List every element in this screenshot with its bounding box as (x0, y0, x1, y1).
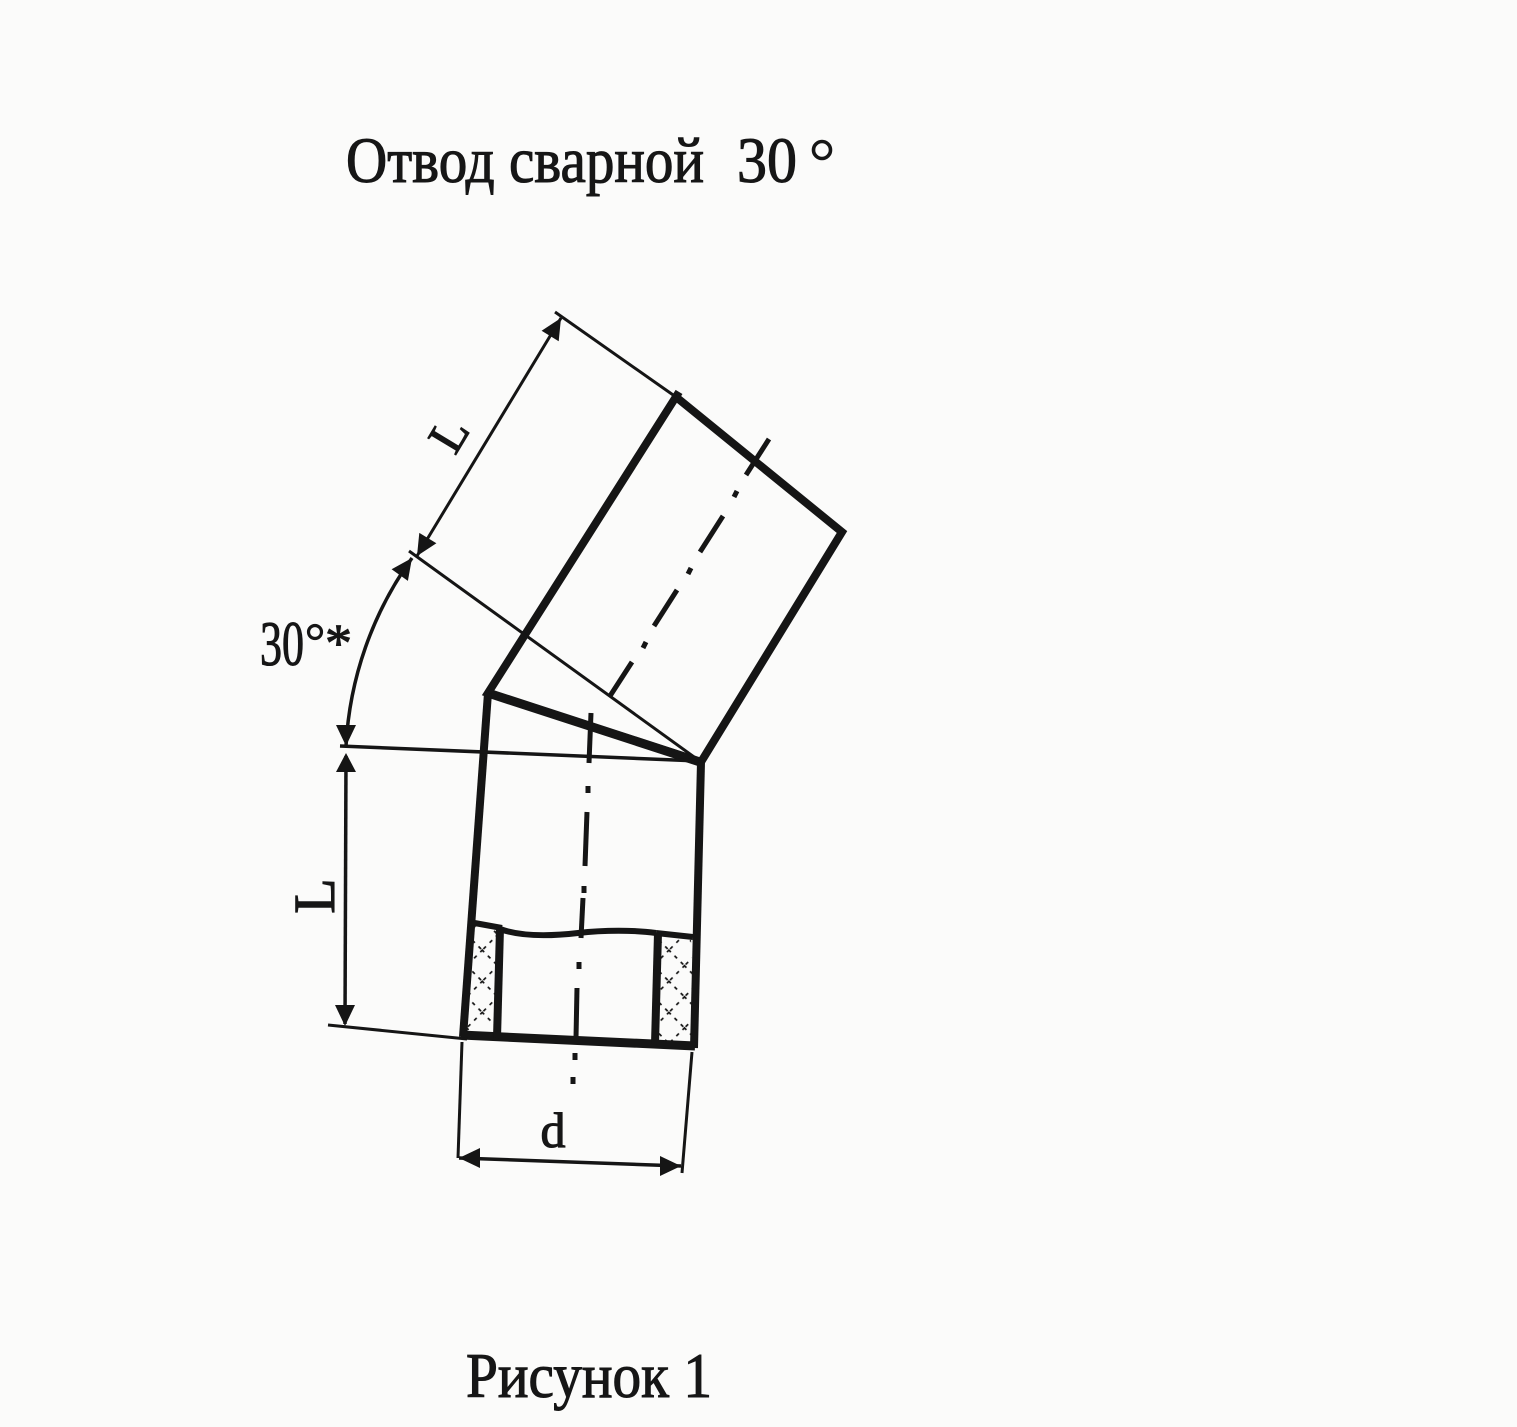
svg-text:Отвод сварной: Отвод сварной (346, 125, 704, 197)
svg-text:L: L (282, 878, 347, 913)
svg-text:L: L (417, 407, 481, 462)
svg-text:d: d (541, 1102, 566, 1158)
svg-text:30: 30 (737, 125, 797, 197)
svg-text:*: * (325, 613, 352, 673)
svg-text:30: 30 (260, 608, 304, 679)
svg-text:Рисунок 1: Рисунок 1 (466, 1341, 712, 1411)
